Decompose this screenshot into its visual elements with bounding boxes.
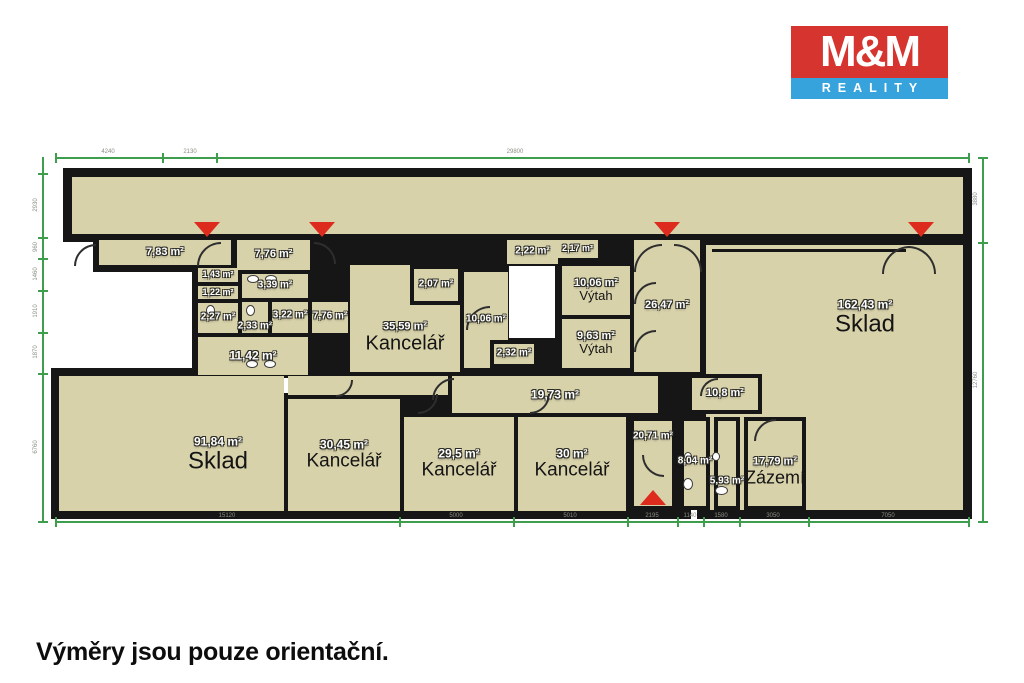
room-232-label: 2,32 m² — [497, 349, 531, 360]
dim-left-label-5: 1870 — [33, 345, 39, 358]
marker-entrance-4-triangle-icon — [908, 222, 934, 237]
dim-right-tick-1 — [978, 157, 988, 159]
room-776-a-label: 7,76 m² — [255, 249, 293, 261]
dim-left-tick-7 — [38, 521, 48, 523]
dim-left-line — [42, 157, 44, 521]
floorplan: 7,83 m²7,76 m²1,43 m²1,22 m²3,39 m²2,27 … — [0, 0, 1024, 683]
dim-bottom-tick-4 — [627, 517, 629, 527]
room-233-label: 2,33 m² — [238, 322, 272, 333]
room-kancelar-30-name: Kancelář — [535, 460, 610, 481]
dim-bottom-tick-6 — [703, 517, 705, 527]
room-kancelar-3045-name: Kancelář — [307, 451, 382, 472]
dim-bottom-label-4: 2195 — [645, 513, 658, 519]
room-108-label: 10,8 m² — [706, 388, 744, 400]
wall-sklad-beam — [712, 249, 906, 252]
room-122-label: 1,22 m² — [202, 288, 233, 298]
room-593-label: 5,93 m² — [710, 477, 744, 488]
dim-bottom-tick-2 — [399, 517, 401, 527]
room-corridor-1973-label: 19,73 m² — [531, 388, 579, 401]
room-1142-label: 11,42 m² — [229, 350, 276, 363]
room-vytah-1006-name: Výtah — [574, 289, 618, 303]
room-233-area: 2,33 m² — [238, 322, 272, 333]
dim-bottom-tick-5 — [677, 517, 679, 527]
room-593 — [714, 417, 740, 510]
dim-top-label-2: 2130 — [183, 149, 196, 155]
dim-right-label-2: 12760 — [973, 372, 979, 389]
room-227-area: 2,27 m² — [201, 313, 235, 324]
room-zazemi-1779-name: Zázemí — [745, 468, 805, 487]
dim-top-label-3: 29800 — [507, 149, 524, 155]
room-776-b-label: 7,76 m² — [313, 312, 347, 323]
dim-top-tick-3 — [216, 153, 218, 163]
door-arc-1 — [74, 244, 96, 266]
room-corridor-1973-area: 19,73 m² — [531, 388, 579, 401]
room-776-a-area: 7,76 m² — [255, 249, 293, 261]
sanitary-fixture-icon-8 — [712, 452, 720, 461]
dim-left-tick-4 — [38, 290, 48, 292]
room-kancelar-3559-name: Kancelář — [366, 333, 445, 355]
room-122-area: 1,22 m² — [202, 288, 233, 298]
dim-left-label-4: 1910 — [33, 304, 39, 317]
dim-top-label-1: 4240 — [101, 149, 114, 155]
dim-top-tick-4 — [968, 153, 970, 163]
room-143-label: 1,43 m² — [202, 270, 233, 280]
room-sklad-9184-name: Sklad — [188, 449, 248, 475]
dim-bottom-tick-8 — [808, 517, 810, 527]
room-207-area: 2,07 m² — [419, 280, 453, 291]
void-left-notch — [97, 272, 192, 368]
dim-left-label-3: 1460 — [33, 267, 39, 280]
room-zazemi-1779-label: 17,79 m²Zázemí — [745, 456, 805, 487]
dim-left-tick-6 — [38, 373, 48, 375]
dim-right-line — [982, 157, 984, 521]
marker-entrance-2-triangle-icon — [309, 222, 335, 237]
dim-right-tick-3 — [978, 521, 988, 523]
room-2647-label: 26,47 m² — [645, 300, 689, 312]
dim-left-tick-2 — [38, 237, 48, 239]
room-kancelar-295-name: Kancelář — [422, 460, 497, 481]
dim-left-tick-3 — [38, 258, 48, 260]
room-593-area: 5,93 m² — [710, 477, 744, 488]
room-2647-area: 26,47 m² — [645, 300, 689, 312]
room-783-label: 7,83 m² — [146, 247, 184, 259]
room-2071-area: 20,71 m² — [633, 432, 673, 443]
room-222-area: 2,22 m² — [515, 247, 549, 258]
room-207-label: 2,07 m² — [419, 280, 453, 291]
dim-left-tick-5 — [38, 332, 48, 334]
room-kancelar-30-area: 30 m² — [535, 447, 610, 460]
dim-top-tick-2 — [162, 153, 164, 163]
marker-entrance-1-triangle-icon — [194, 222, 220, 237]
mm-reality-logo: M&M REALITY — [791, 26, 948, 99]
dim-right-tick-2 — [978, 242, 988, 244]
dim-left-label-2: 960 — [33, 242, 39, 252]
dim-bottom-tick-9 — [968, 517, 970, 527]
logo-reality-text: REALITY — [791, 78, 948, 99]
room-322-label: 3,22 m² — [273, 311, 307, 322]
dim-bottom-label-8: 7050 — [881, 513, 894, 519]
room-kancelar-3045-area: 30,45 m² — [307, 438, 382, 451]
room-1142-area: 11,42 m² — [229, 350, 276, 363]
room-sklad-16243-name: Sklad — [835, 312, 895, 338]
dim-bottom-label-5: 1140 — [684, 513, 697, 519]
room-232-area: 2,32 m² — [497, 349, 531, 360]
room-804-label: 8,04 m² — [678, 457, 712, 468]
sanitary-fixture-icon-9 — [683, 478, 693, 490]
room-217-area: 2,17 m² — [562, 244, 593, 254]
dim-bottom-label-1: 15120 — [219, 513, 236, 519]
dim-left-label-6: 6760 — [33, 440, 39, 453]
room-sklad-9184-label: 91,84 m²Sklad — [188, 436, 248, 475]
room-kancelar-30-label: 30 m²Kancelář — [535, 447, 610, 480]
logo-mm-text: M&M — [791, 26, 948, 78]
dim-left-tick-1 — [38, 173, 48, 175]
dim-bottom-tick-3 — [513, 517, 515, 527]
room-776-b-area: 7,76 m² — [313, 312, 347, 323]
room-783-area: 7,83 m² — [146, 247, 184, 259]
dim-top-tick-1 — [55, 153, 57, 163]
room-227-label: 2,27 m² — [201, 313, 235, 324]
sanitary-fixture-icon-4 — [246, 305, 255, 316]
room-sklad-16243-label: 162,43 m²Sklad — [835, 299, 895, 338]
room-kancelar-295-label: 29,5 m²Kancelář — [422, 447, 497, 480]
dim-bottom-label-7: 3050 — [766, 513, 779, 519]
room-143-area: 1,43 m² — [202, 270, 233, 280]
room-kancelar-3559-label: 35,59 m²Kancelář — [366, 321, 445, 354]
room-1006-chodba-area: 10,06 m² — [466, 315, 506, 326]
room-339-area: 3,39 m² — [258, 281, 292, 292]
dim-bottom-label-2: 5000 — [449, 513, 462, 519]
room-804-area: 8,04 m² — [678, 457, 712, 468]
room-vytah-963-name: Výtah — [577, 342, 615, 356]
dim-top-line — [55, 157, 968, 159]
room-vytah-963-label: 9,63 m²Výtah — [577, 331, 615, 357]
room-339-label: 3,39 m² — [258, 281, 292, 292]
room-217-label: 2,17 m² — [562, 244, 593, 254]
marker-entrance-3-triangle-icon — [654, 222, 680, 237]
void-staircase — [509, 266, 555, 338]
room-2071-label: 20,71 m² — [633, 432, 673, 443]
room-108-area: 10,8 m² — [706, 388, 744, 400]
room-corridor-small — [288, 376, 448, 395]
room-vytah-1006-label: 10,06 m²Výtah — [574, 278, 618, 304]
room-322-area: 3,22 m² — [273, 311, 307, 322]
dim-bottom-line — [55, 521, 968, 523]
dim-left-label-1: 2930 — [33, 198, 39, 211]
dim-bottom-tick-7 — [739, 517, 741, 527]
dim-bottom-tick-1 — [55, 517, 57, 527]
room-kancelar-295-area: 29,5 m² — [422, 447, 497, 460]
room-222-label: 2,22 m² — [515, 247, 549, 258]
disclaimer-text: Výměry jsou pouze orientační. — [36, 638, 389, 667]
room-1006-chodba-label: 10,06 m² — [466, 315, 506, 326]
dim-right-label-1: 3880 — [973, 192, 979, 205]
room-kancelar-3045-label: 30,45 m²Kancelář — [307, 438, 382, 471]
room-sklad-9184 — [59, 376, 284, 511]
marker-entrance-5-triangle-icon — [640, 490, 666, 505]
dim-bottom-label-6: 1580 — [714, 513, 727, 519]
dim-bottom-label-3: 5010 — [563, 513, 576, 519]
